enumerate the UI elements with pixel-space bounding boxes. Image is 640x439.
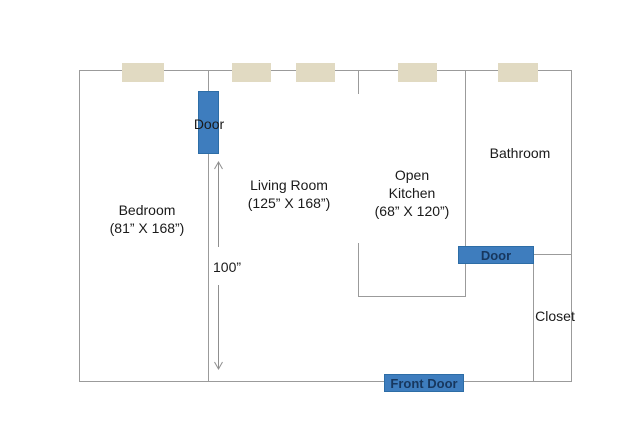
wall-living-kitchen-stub: [358, 70, 359, 94]
front-door: Front Door: [384, 374, 464, 392]
window-icon: [122, 63, 164, 82]
wall-kitchen-bottom: [358, 296, 466, 297]
kitchen-name-line2: Kitchen: [332, 184, 492, 202]
kitchen-label: Open Kitchen (68” X 120”): [332, 166, 492, 220]
bedroom-name: Bedroom: [67, 201, 227, 219]
wall-kitchen-left: [358, 243, 359, 297]
front-door-label: Front Door: [390, 377, 457, 390]
window-icon: [498, 63, 538, 82]
window-icon: [296, 63, 335, 82]
bathroom-label: Bathroom: [450, 144, 590, 162]
bedroom-door-label: Door: [179, 116, 239, 132]
closet-label: Closet: [505, 307, 605, 325]
dimension-label: 100”: [213, 258, 273, 276]
bathroom-door: Door: [458, 246, 534, 264]
kitchen-name-line1: Open: [332, 166, 492, 184]
bathroom-door-label: Door: [481, 249, 511, 262]
bedroom-dims: (81” X 168”): [67, 219, 227, 237]
window-icon: [232, 63, 271, 82]
bedroom-label: Bedroom (81” X 168”): [67, 201, 227, 237]
floor-plan: Door Door Front Door Bedroom (81” X 168”…: [0, 0, 640, 439]
kitchen-dims: (68” X 120”): [332, 202, 492, 220]
window-icon: [398, 63, 437, 82]
